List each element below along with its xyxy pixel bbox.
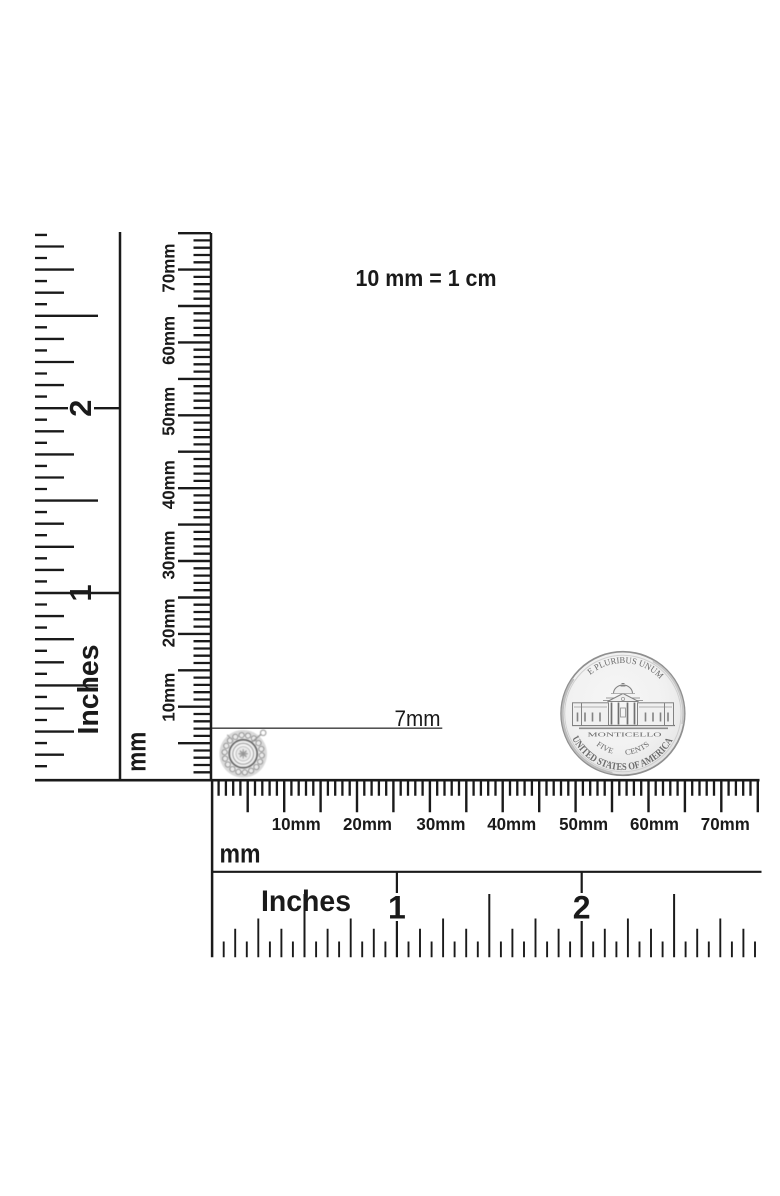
svg-text:30mm: 30mm: [416, 814, 465, 834]
svg-text:20mm: 20mm: [159, 598, 179, 647]
svg-text:70mm: 70mm: [701, 814, 750, 834]
svg-text:2: 2: [63, 400, 98, 417]
svg-text:MONTICELLO: MONTICELLO: [588, 732, 662, 739]
svg-text:Inches: Inches: [73, 645, 105, 735]
svg-text:20mm: 20mm: [343, 814, 392, 834]
svg-text:10 mm = 1 cm: 10 mm = 1 cm: [356, 265, 497, 291]
svg-text:mm: mm: [220, 839, 261, 869]
svg-text:1: 1: [63, 584, 98, 601]
svg-text:50mm: 50mm: [559, 814, 608, 834]
svg-text:60mm: 60mm: [159, 316, 179, 365]
svg-text:40mm: 40mm: [487, 814, 536, 834]
svg-text:50mm: 50mm: [159, 387, 179, 436]
svg-text:10mm: 10mm: [159, 673, 179, 722]
svg-text:60mm: 60mm: [630, 814, 679, 834]
svg-text:40mm: 40mm: [159, 460, 179, 509]
svg-text:2: 2: [573, 890, 591, 926]
svg-text:mm: mm: [121, 732, 151, 772]
svg-text:7mm: 7mm: [395, 706, 441, 731]
svg-text:10mm: 10mm: [272, 814, 321, 834]
svg-text:70mm: 70mm: [159, 244, 179, 293]
svg-text:1: 1: [388, 890, 406, 926]
svg-text:30mm: 30mm: [159, 531, 179, 580]
svg-text:Inches: Inches: [261, 885, 351, 918]
